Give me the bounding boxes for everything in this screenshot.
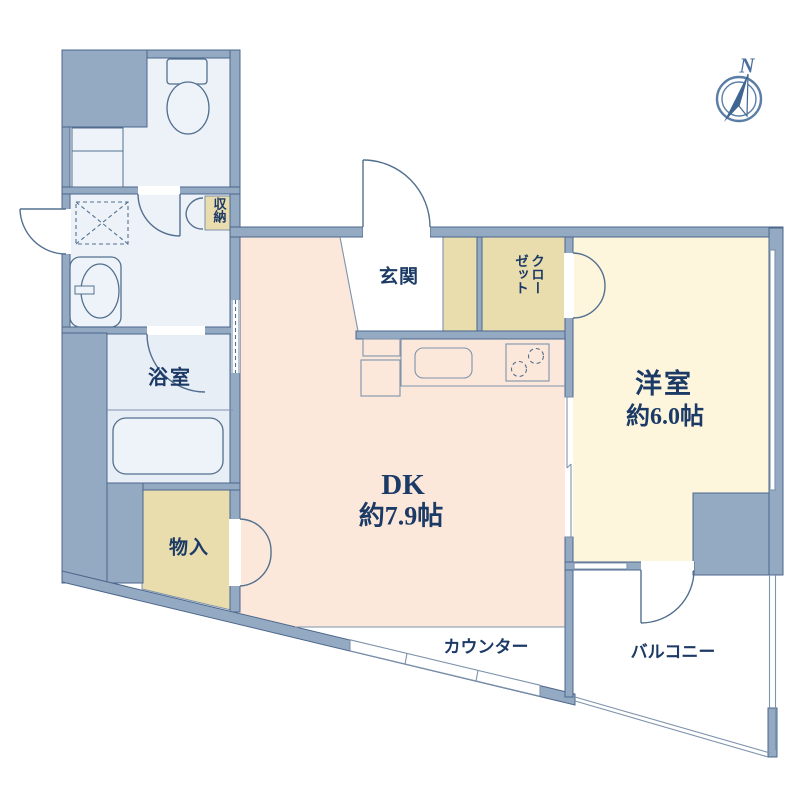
bathtub-icon [113, 418, 223, 474]
label-dk-size: 約7.9帖 [359, 503, 444, 532]
vanity-sink-icon [70, 257, 121, 327]
balcony-edge-inner [575, 701, 768, 757]
balcony-door-opening [641, 561, 694, 571]
label-counter: カウンター [444, 639, 529, 658]
wall-segment [356, 331, 573, 339]
shoe-cabinet [443, 237, 477, 331]
compass-north-label: N [739, 54, 754, 79]
entrance-door-icon [363, 160, 430, 227]
wall-segment [107, 483, 143, 583]
wall-pillar [693, 493, 769, 575]
label-bathroom: 浴室 [148, 367, 192, 389]
label-closet: クローゼット [512, 254, 544, 306]
monoire-door-opening [229, 519, 241, 586]
entrance-door-opening [363, 226, 430, 238]
wall-segment [230, 227, 363, 237]
wall-segment [62, 50, 147, 127]
compass-icon [717, 74, 761, 122]
label-balcony: バルコニー [631, 644, 716, 663]
bathroom-door-opening [147, 326, 205, 335]
wall-segment [430, 227, 783, 237]
wall-segment [477, 237, 482, 331]
label-entrance: 玄関 [379, 268, 419, 289]
label-monoire: 物入 [169, 539, 209, 560]
balcony-edge-outer [575, 697, 770, 753]
label-shuno: 収納 [210, 197, 229, 229]
balcony-door-icon [641, 570, 694, 623]
floor-plan: DK 約7.9帖 洋室 約6.0帖 玄関 浴室 物入 カウンター バルコニー 収… [0, 0, 800, 800]
floor-plan-drawing [0, 0, 800, 800]
toilet-icon [167, 59, 209, 134]
label-dk: DK [381, 470, 425, 502]
label-western-room-size: 約6.0帖 [626, 404, 704, 430]
shelf-icon [72, 128, 123, 151]
wall-segment [62, 333, 107, 583]
label-western-room: 洋室 [635, 370, 693, 400]
wall-segment [565, 537, 573, 697]
side-door-icon [20, 209, 66, 254]
side-door-opening [61, 209, 71, 254]
toilet-door-opening [138, 186, 180, 195]
shelf-icon [72, 151, 123, 187]
closet-door-opening [564, 253, 574, 318]
